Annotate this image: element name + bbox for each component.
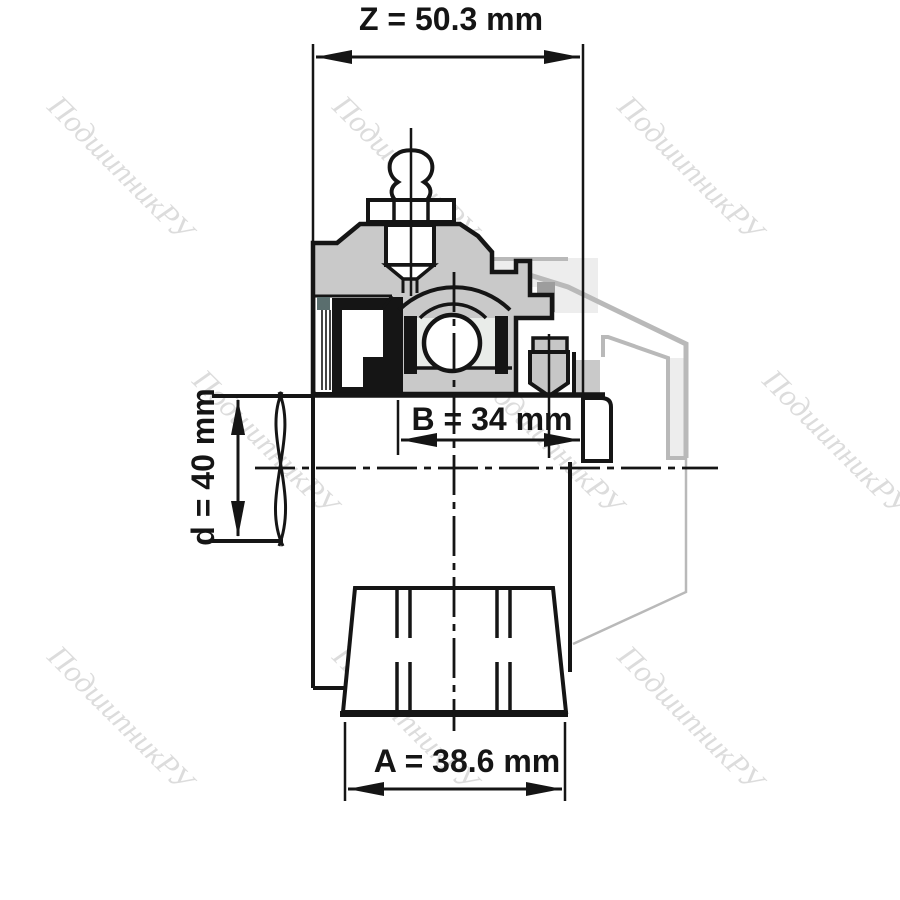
locking-collar-end [583,398,611,461]
dimension-a: A = 38.6 mm [345,722,565,801]
watermark-text: ПодшипникРУ [610,637,773,800]
seal-wedge-right [495,316,508,374]
bearing-drawing-page: ПодшипникРУ ПодшипникРУ ПодшипникРУ Подш… [0,0,900,900]
arrowhead-right [544,50,580,64]
seal-window [342,310,383,357]
inner-ring-left-face [392,297,403,394]
watermark-text: ПодшипникРУ [755,361,900,524]
dimension-z-label: Z = 50.3 mm [359,1,543,37]
technical-drawing: ПодшипникРУ ПодшипникРУ ПодшипникРУ Подш… [0,0,900,900]
ghost-fill-channel [668,358,685,458]
bearing-ball [424,315,480,371]
dimension-a-label: A = 38.6 mm [374,743,560,779]
watermark-text: ПодшипникРУ [40,87,203,250]
seal-accent-block [317,297,330,310]
seal-collar-left [313,296,403,394]
seal-wedge-left [404,316,417,374]
watermark-text: ПодшипникРУ [40,637,203,800]
dimension-d-label: d = 40 mm [185,388,221,545]
arrowhead-left [316,50,352,64]
arrowhead-left [348,782,384,796]
watermark-text: ПодшипникРУ [610,87,773,250]
arrowhead-down [231,501,245,537]
seal-window-step [342,357,363,387]
collar-section-right [576,360,600,394]
dimension-b-label: B = 34 mm [412,401,573,437]
arrowhead-right [526,782,562,796]
